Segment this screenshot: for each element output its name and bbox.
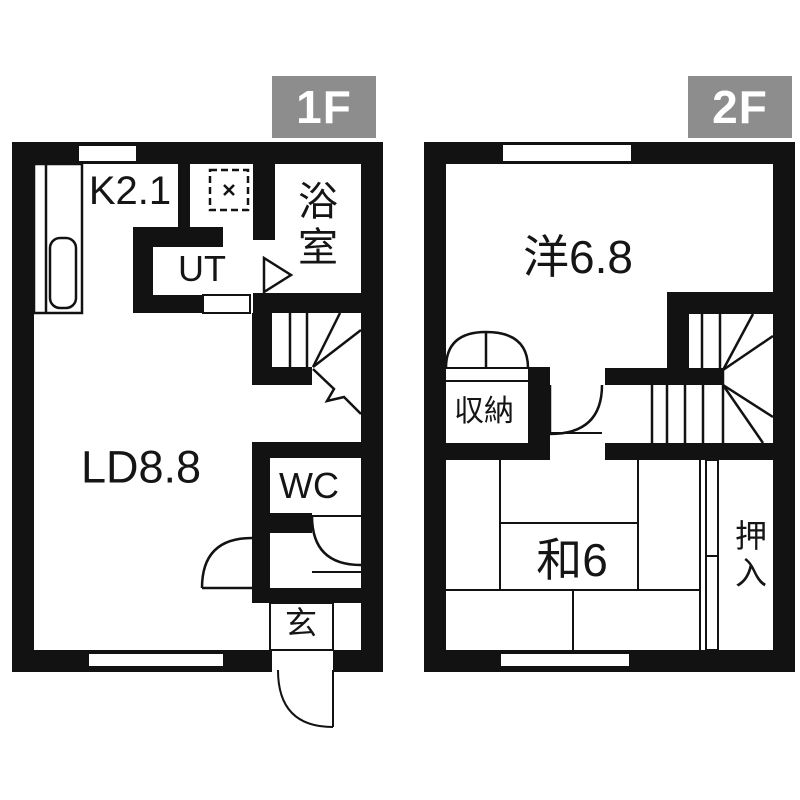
floorplan-linework xyxy=(0,0,800,800)
floor-tag-2f: 2F xyxy=(688,76,792,138)
room-label-western-room: 洋6.8 xyxy=(523,234,633,280)
room-label-toilet: WC xyxy=(279,468,339,504)
window xyxy=(500,653,630,667)
floor-tag-1f: 1F xyxy=(272,76,376,138)
kitchen-sink xyxy=(50,238,76,308)
room-label-japanese-room: 和6 xyxy=(536,537,608,583)
room-label-kitchen: K2.1 xyxy=(89,171,171,211)
floorplan-canvas: 1F 2F K2.1 UT 浴室 LD8.8 WC 玄 洋6.8 収納 和6 押… xyxy=(0,0,800,800)
room-label-living-dining: LD8.8 xyxy=(81,445,201,490)
room-label-bath: 浴室 xyxy=(294,180,334,272)
entrance-door-arc xyxy=(278,670,333,727)
room-label-utility: UT xyxy=(178,251,226,287)
room-label-closet: 押入 xyxy=(733,519,765,593)
window xyxy=(88,653,224,667)
window xyxy=(502,144,632,162)
room-label-entrance: 玄 xyxy=(285,607,317,639)
window xyxy=(78,145,137,162)
ut-opening xyxy=(203,295,250,313)
1f-entrance-opening xyxy=(272,650,333,674)
kitchen-counter xyxy=(34,164,82,313)
room-label-storage: 収納 xyxy=(454,397,514,427)
